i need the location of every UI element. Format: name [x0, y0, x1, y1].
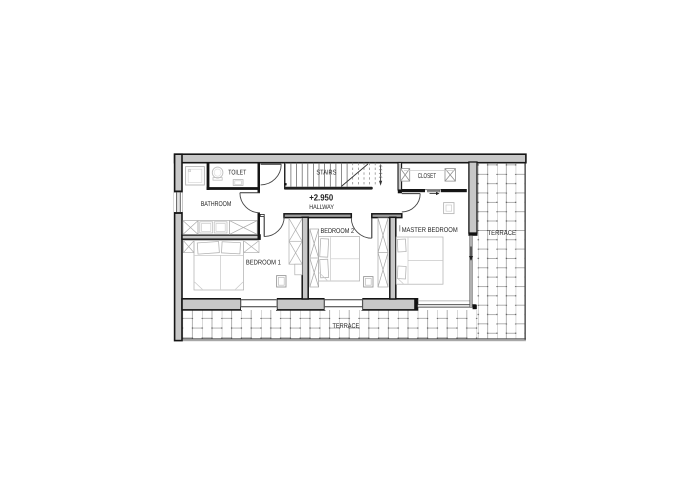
- svg-text:MASTER BEDROOM: MASTER BEDROOM: [402, 227, 458, 234]
- svg-text:TERRACE: TERRACE: [488, 230, 517, 237]
- svg-text:STAIRS: STAIRS: [316, 170, 336, 177]
- svg-text:TOILET: TOILET: [228, 169, 247, 176]
- svg-text:BEDROOM 2: BEDROOM 2: [321, 228, 355, 235]
- svg-text:BEDROOM 1: BEDROOM 1: [246, 259, 281, 266]
- svg-text:CLOSET: CLOSET: [418, 173, 437, 180]
- svg-text:HALLWAY: HALLWAY: [309, 204, 334, 211]
- svg-text:BATHROOM: BATHROOM: [201, 201, 232, 208]
- svg-text:+2.950: +2.950: [309, 193, 333, 203]
- svg-text:TERRACE: TERRACE: [333, 323, 360, 330]
